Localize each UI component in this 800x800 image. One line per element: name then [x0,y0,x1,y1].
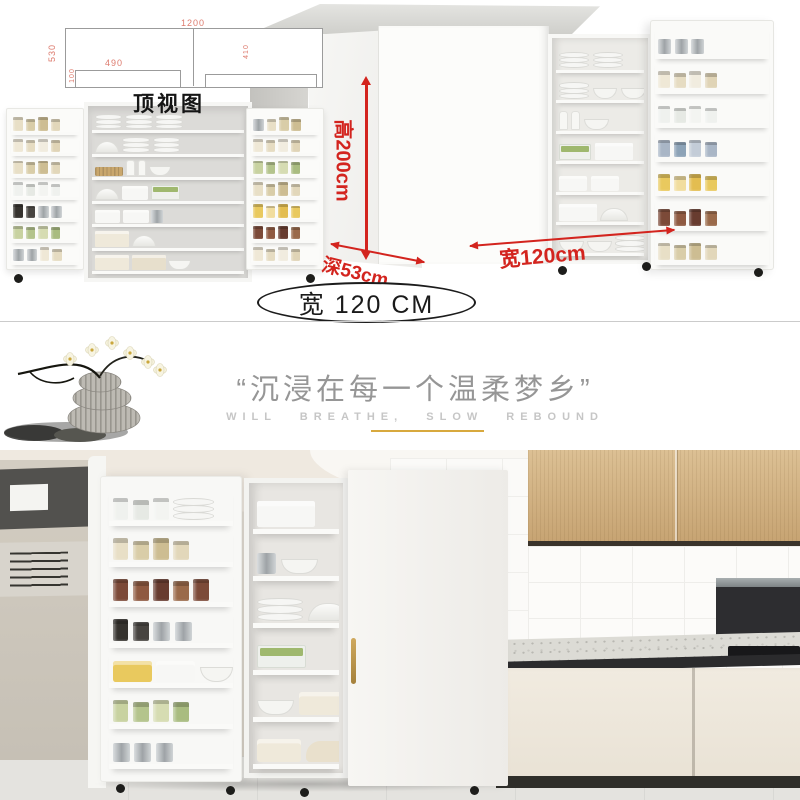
tin [156,743,173,763]
pot [95,210,121,224]
shelf-row [251,243,319,265]
pot [122,186,148,200]
jar [689,209,701,226]
jar [253,204,263,218]
jar [674,73,686,88]
bowl [593,88,618,99]
jar [52,249,62,261]
shelf-row [92,133,244,156]
bowl [168,260,190,270]
jar [674,176,686,191]
jar [173,541,189,561]
tin [675,39,688,54]
kitchen-scene [0,450,800,800]
top-view-label: 顶视图 [133,88,205,118]
shelf-row [109,486,233,526]
shelf-row [253,581,339,628]
shelf-row [655,231,769,265]
jar [291,206,301,218]
jar [38,182,48,196]
jar [291,119,301,131]
bowl [257,700,294,716]
slogan-section: “沉浸在每一个温柔梦乡” WILL BREATHE, SLOW REBOUND [0,324,800,450]
plate-stack [122,138,150,152]
pot [123,210,149,224]
jar [658,71,670,88]
plate-stack [257,599,303,622]
shelf-row [109,567,233,607]
jar [689,174,701,191]
shelf-row [92,157,244,180]
tin [153,622,170,642]
jar [705,245,717,260]
pot [257,739,301,762]
jar [26,206,36,218]
jar [133,622,149,642]
bowl [281,559,318,575]
pantry-sliding-door [348,470,508,786]
jar [278,226,288,240]
open-cabinet-render [6,98,322,288]
jar [153,700,169,722]
bottle [126,160,134,176]
shelf-row [556,42,644,73]
jar [658,174,670,191]
gold-underline [371,430,484,432]
jar [26,140,36,152]
shelf-row [92,227,244,250]
shelf-row [109,607,233,647]
dome [95,141,120,153]
jar [658,243,670,260]
jar [133,500,149,520]
jar [26,227,36,239]
jar [113,498,129,520]
caster-wheel [470,786,479,795]
plate-stack [615,236,644,252]
dome [308,603,339,622]
jar [13,226,23,240]
height-dimension-label: 高200cm [331,106,360,216]
shelf-row [655,162,769,196]
kickplate [496,776,800,788]
bowl [621,88,644,99]
shelf-row [11,178,79,200]
caster-wheel [116,784,125,793]
jar [674,142,686,157]
jar [658,140,670,157]
box [95,255,129,270]
shelf-row [556,103,644,134]
pot [299,692,339,715]
shelf-row [109,648,233,688]
shelf-row [655,25,769,59]
jar [38,139,48,153]
tin [38,206,48,218]
pantry-open-door [100,476,242,782]
jar [266,162,276,174]
jar [51,140,61,152]
dome [95,188,120,200]
shelf-row [655,59,769,93]
left-door-shelves [6,108,84,270]
lower-cabinets [496,668,800,780]
cabinet-seam [692,668,695,780]
hood-steel-trim [716,578,800,587]
jar [133,702,149,722]
jar [291,227,301,239]
dim-small-right: 410 [243,44,250,59]
vent-slats [10,552,68,589]
door-handle [351,638,356,684]
jar [38,161,48,175]
tin [27,249,37,261]
jar [278,204,288,218]
jar [153,498,169,520]
height-dimension-arrow [365,84,368,252]
bottle [559,111,568,129]
shelf-row [251,178,319,200]
shelf-row [109,729,233,769]
jar [173,702,189,722]
dome [132,235,157,247]
jar [13,117,23,131]
section-divider [0,321,800,322]
jar [266,206,276,218]
jar [153,579,169,601]
jar [253,139,263,153]
jar [674,211,686,226]
jar [26,119,36,131]
caster-wheel [14,274,23,283]
cabinet-center-shelves [84,102,252,282]
bowl [584,119,609,130]
jar [51,162,61,174]
box [257,501,315,527]
dome [600,208,628,221]
bottle [138,160,146,176]
jar [689,71,701,88]
jar [278,161,288,175]
box [595,143,633,160]
caster-wheel [642,262,651,271]
shelf-row [253,534,339,581]
jar [267,119,277,131]
shelf-row [655,128,769,162]
shelf-row [11,156,79,178]
jar [173,581,189,601]
shelf-row [109,688,233,728]
shelf-row [253,487,339,534]
jar [51,184,61,196]
jar [38,117,48,131]
bowl [200,667,233,681]
jar [266,184,276,196]
jar [658,209,670,226]
jar [133,541,149,561]
jar [291,249,301,261]
bowl [587,241,612,252]
jar [13,182,23,196]
plate-stack [153,138,181,152]
jar [689,243,701,260]
jar [266,249,276,261]
jar [193,579,209,601]
drawing-inner-rect-left [75,70,181,88]
jar [674,108,686,123]
plate-stack [559,53,590,69]
width-badge-text: 宽 120 CM [299,285,434,321]
bundle [306,741,339,763]
jar [278,182,288,196]
tin [658,39,671,54]
jar [291,162,301,174]
pantry-interior-shelves [244,478,348,778]
jar [13,204,23,218]
sliding-door-closed [378,26,549,264]
dim-left-height: 530 [47,44,57,62]
appliance-screen [10,484,48,511]
tin [257,553,276,575]
jar [689,106,701,123]
jar [279,117,289,131]
shelf-row [556,195,644,226]
cabinet-interior-shelves [548,34,652,264]
upper-wood-cabinets [528,450,800,546]
jar [705,142,717,157]
tin [253,119,263,131]
box [132,255,166,270]
bowl [149,166,171,176]
tin [175,622,192,642]
jar [658,106,670,123]
pot [559,176,588,191]
cabinet-seam [675,450,677,541]
tin [113,743,130,763]
shelf-row [92,251,244,274]
jar [253,226,263,240]
shelf-row [655,94,769,128]
pot [113,661,152,682]
pot [156,661,195,682]
jar [51,227,61,239]
jar [51,119,61,131]
box [95,231,129,246]
tin [151,210,162,223]
tin [51,206,61,218]
jar [113,579,129,601]
jar [253,161,263,175]
slogan-english: WILL BREATHE, SLOW REBOUND [135,411,695,423]
jar [705,108,717,123]
shelf-row [11,222,79,244]
jar [278,139,288,153]
jar [153,538,169,560]
shelf-row [109,526,233,566]
shelf-row [92,180,244,203]
jar [26,184,36,196]
shelf-row [253,722,339,769]
width-badge: 宽 120 CM [257,282,476,323]
vent-grille [0,541,92,597]
shelf-row [251,156,319,178]
jar [705,73,717,88]
jar [13,139,23,153]
appliance [0,460,98,760]
plate-stack [559,83,590,99]
veg [257,645,305,669]
shelf-row [11,200,79,222]
shelf-row [11,135,79,157]
shelf-row [92,204,244,227]
jar [113,700,129,722]
drawing-divider-line [193,28,194,86]
dim-total-width: 1200 [65,18,321,28]
jar [689,140,701,157]
pot [591,176,620,191]
product-detail-image: 1200 530 490 100 410 顶视图 高200cm 深53cm 宽1… [0,0,800,800]
shelf-row [556,164,644,195]
shelf-row [11,243,79,265]
top-view-drawing: 1200 530 490 100 410 顶视图 [55,12,335,118]
caster-wheel [226,786,235,795]
jar [278,247,288,261]
jar [133,581,149,601]
slogan-chinese: “沉浸在每一个温柔梦乡” [135,366,695,408]
dim-small-left: 100 [69,68,76,83]
jar [26,162,36,174]
jar [705,176,717,191]
caster-wheel [306,274,315,283]
veg [151,185,180,200]
tin [13,249,23,261]
jar [40,247,50,261]
veg [559,144,591,160]
plate-stack [173,499,214,520]
caster-wheel [754,268,763,277]
right-door-shelves [246,108,324,270]
jar [253,182,263,196]
jar [674,245,686,260]
jar [38,226,48,240]
jar [113,619,129,641]
jar [266,227,276,239]
shelf-row [251,222,319,244]
drawing-inner-rect-right [205,74,317,88]
plate-stack [593,53,624,69]
shelf-row [556,134,644,165]
bottle [571,111,580,129]
jar [113,538,129,560]
dim-inner-width: 490 [105,58,123,68]
shelf-row [253,675,339,722]
shelf-row [251,135,319,157]
jar [291,140,301,152]
jar [13,161,23,175]
tin [134,743,151,763]
jar [253,247,263,261]
caster-wheel [300,788,309,797]
shelf-row [556,73,644,104]
jar [705,211,717,226]
appliance-dark-panel [0,466,88,529]
jar [266,140,276,152]
basket [95,167,124,176]
box [559,204,597,221]
jar [291,184,301,196]
shelf-row [251,200,319,222]
tin [691,39,704,54]
shelf-row [253,628,339,675]
